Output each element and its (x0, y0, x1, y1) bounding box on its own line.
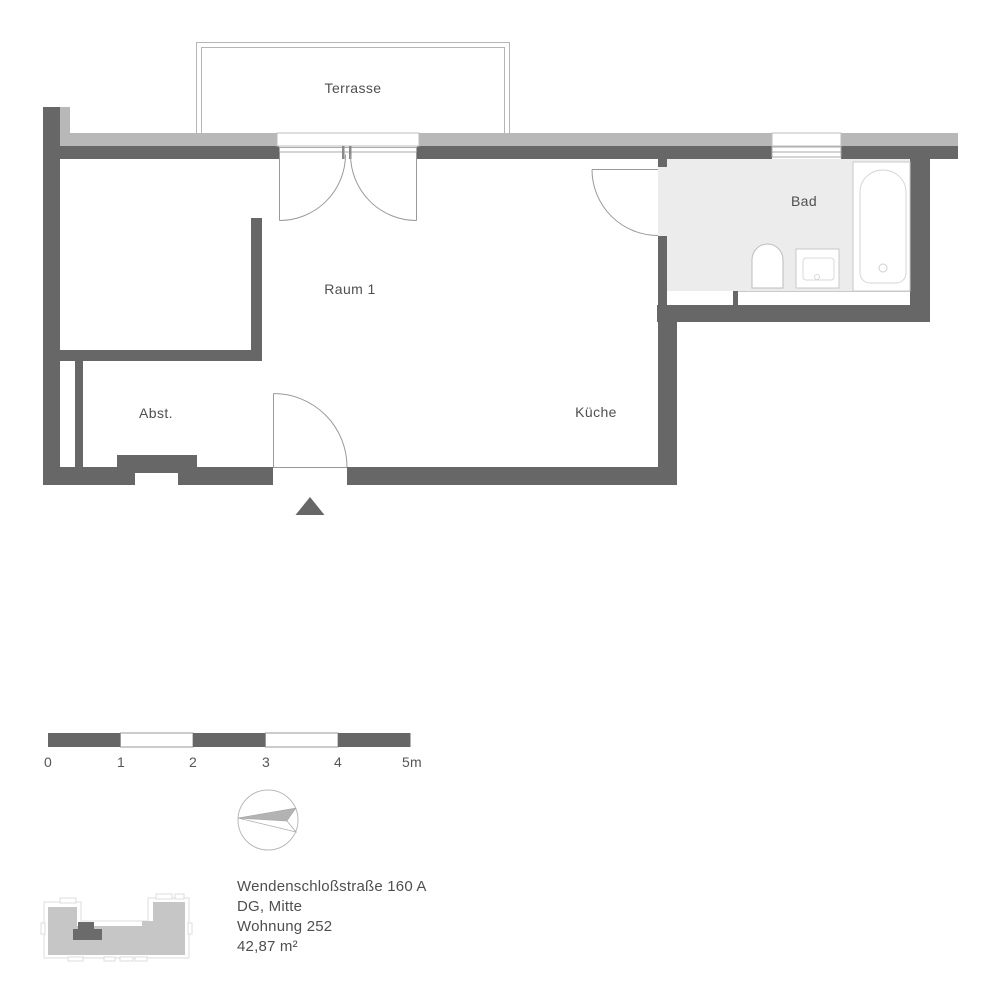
wall-layer-segment (60, 133, 277, 146)
wall-segment (733, 291, 738, 305)
entrance-door-swing (274, 394, 348, 468)
wall-segment (417, 146, 772, 159)
terrace-door-sill (277, 133, 419, 146)
toilet (752, 244, 783, 288)
info-floor: DG, Mitte (237, 897, 427, 917)
entrance-door (273, 394, 347, 468)
info-address: Wendenschloßstraße 160 A (237, 877, 427, 897)
wall-segment (43, 350, 262, 361)
building-outline-tab (120, 957, 133, 961)
wall-layer-segment (841, 133, 958, 146)
wall-segment (657, 305, 930, 322)
wall-segment (841, 146, 958, 159)
scale-bar-segment-dark (193, 733, 265, 747)
scale-bar-segment-dark (338, 733, 410, 747)
wall-segment (910, 159, 930, 322)
terrace-door-stile (342, 146, 345, 159)
scale-label-0: 0 (44, 754, 52, 770)
terrace-door (277, 133, 419, 221)
bathroom-door-swing (592, 170, 658, 236)
building-outline-tab (175, 894, 184, 899)
building-wing (153, 902, 185, 955)
building-outline-tab (156, 894, 172, 899)
scale-bar-segment-dark (48, 733, 120, 747)
bathroom-window-sill (772, 133, 841, 146)
bathtub (853, 162, 910, 291)
building-outline-tab (188, 923, 192, 934)
wall-segment (117, 455, 197, 467)
room-label-bad: Bad (791, 193, 817, 209)
scale-label-4: 4 (334, 754, 342, 770)
terrace-door-swing-right (351, 155, 417, 221)
scale-bar-segment-light (265, 733, 338, 747)
terrace-door-closed-line (280, 148, 417, 153)
sink (796, 249, 839, 288)
wall-layer-segment (419, 133, 772, 146)
wall-segment (347, 467, 677, 485)
building-outline-tab (60, 898, 76, 903)
sink-outer (796, 249, 839, 288)
room-label-kueche: Küche (575, 404, 617, 420)
building-locator-icon (41, 894, 192, 961)
scale-label-3: 3 (262, 754, 270, 770)
bathroom-niche (667, 291, 733, 305)
room-label-abst: Abst. (139, 405, 173, 421)
room-label-raum1: Raum 1 (324, 281, 375, 297)
wall-segment (658, 236, 667, 305)
scale-bar-segment-light (120, 733, 193, 747)
building-outline-tab (104, 957, 115, 961)
bathroom-ledge (738, 291, 910, 305)
bathroom-window (772, 133, 841, 157)
compass-icon (238, 790, 298, 850)
bathroom-door-gap (658, 167, 667, 236)
info-area: 42,87 m² (237, 937, 427, 957)
wall-layer-segment (60, 107, 70, 133)
room-label-terrasse: Terrasse (325, 80, 382, 96)
wall-segment (60, 146, 279, 159)
building-outline-tab (41, 923, 45, 934)
wall-segment (658, 159, 667, 167)
terrace-door-swing-left (280, 155, 346, 221)
entrance-arrow-icon (296, 497, 325, 515)
wall-notch (135, 473, 178, 485)
bathroom-door (592, 170, 658, 236)
wall-segment (251, 218, 262, 361)
building-wing (48, 907, 77, 955)
floor-plan-page: Terrasse Raum 1 Bad Abst. Küche 0 1 2 3 … (0, 0, 1000, 1000)
wall-segment (43, 107, 60, 485)
building-outline-tab (135, 957, 147, 961)
building-wing (142, 921, 153, 927)
building-outline-tab (68, 957, 83, 961)
info-unit: Wohnung 252 (237, 917, 427, 937)
scale-label-1: 1 (117, 754, 125, 770)
unit-highlight (73, 929, 102, 940)
wall-segment (658, 322, 677, 467)
apartment-info: Wendenschloßstraße 160 A DG, Mitte Wohnu… (237, 877, 427, 957)
floor-plan-canvas: Terrasse Raum 1 Bad Abst. Küche 0 1 2 3 … (0, 0, 1000, 1000)
scale-label-2: 2 (189, 754, 197, 770)
wall-segment (75, 361, 83, 467)
scale-bar (48, 733, 410, 747)
unit-highlight (78, 922, 94, 930)
scale-label-5m: 5m (402, 754, 422, 770)
